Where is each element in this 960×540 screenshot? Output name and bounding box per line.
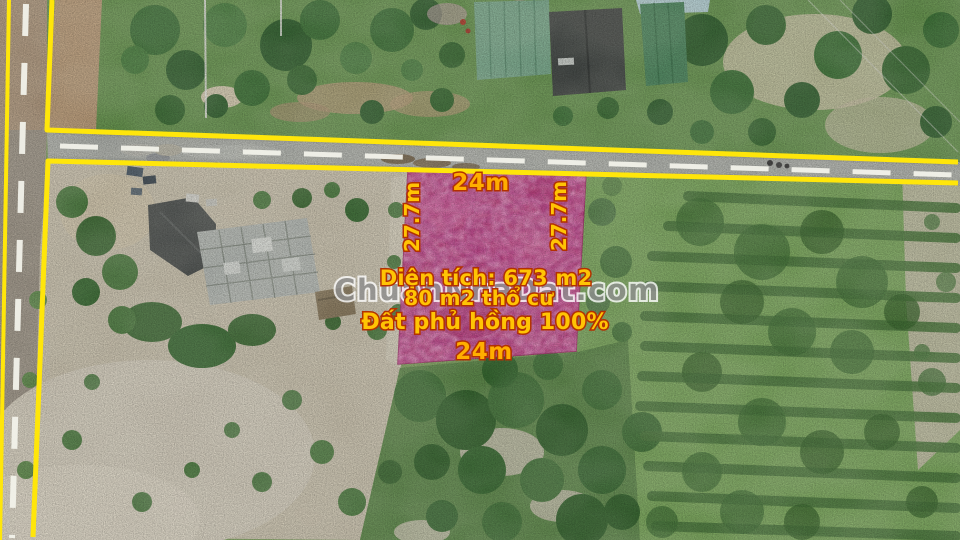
plot-right-depth-label: 27.7m bbox=[547, 181, 571, 251]
plot-top-width-label: 24m bbox=[452, 170, 509, 196]
plot-bottom-width-label: 24m bbox=[455, 339, 512, 365]
plot-left-depth-label: 27.7m bbox=[400, 182, 424, 252]
aerial-photo-canvas: ChuanNhaDat.com 24m 24m 27.7m 27.7m Diện… bbox=[0, 0, 960, 540]
plot-residential-area-label: 80 m2 thổ cư bbox=[404, 286, 554, 310]
plot-coverage-label: Đất phủ hồng 100% bbox=[361, 310, 608, 335]
aerial-listing-photo: ChuanNhaDat.com 24m 24m 27.7m 27.7m Diện… bbox=[0, 0, 960, 540]
